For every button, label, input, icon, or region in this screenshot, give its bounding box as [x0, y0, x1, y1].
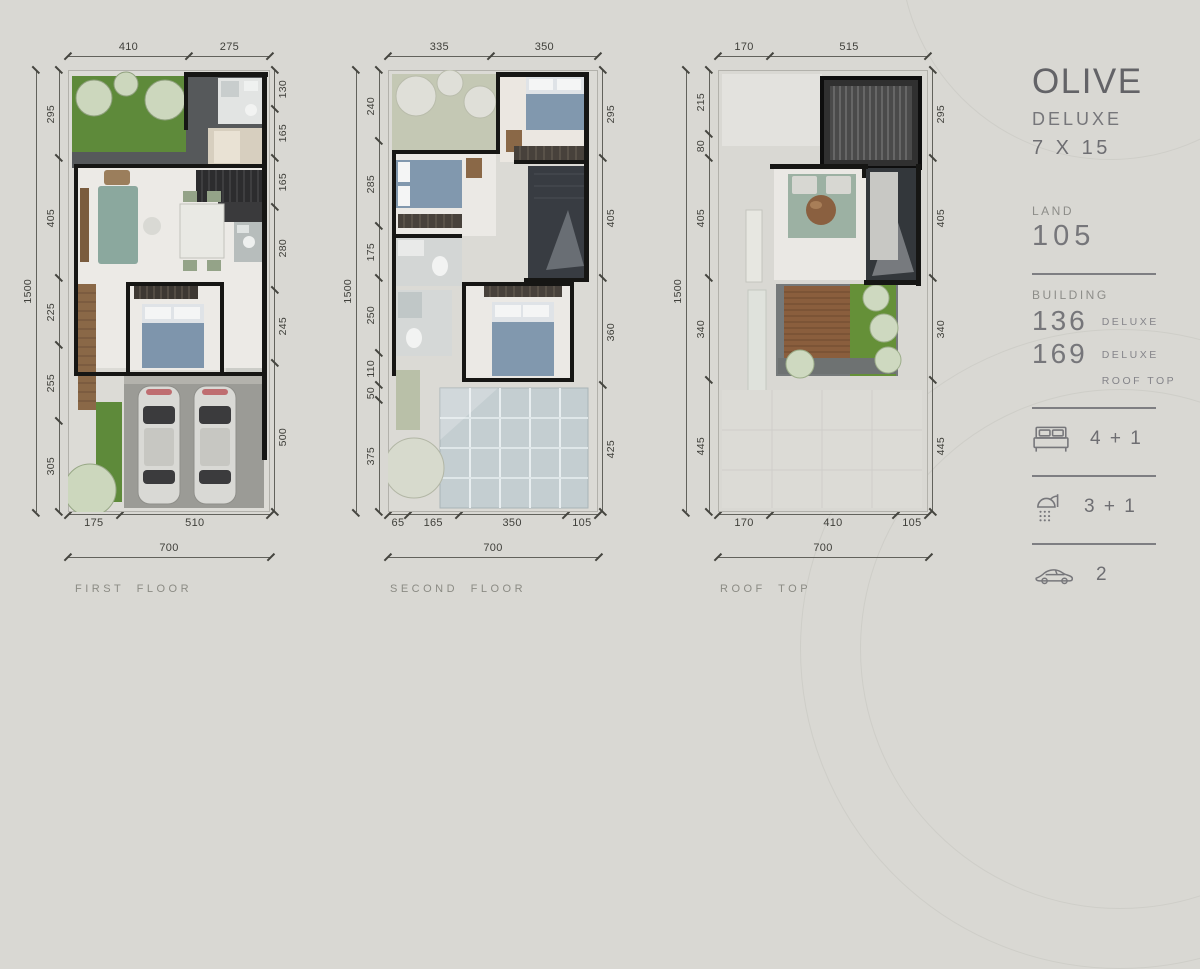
dim-label: 410: [823, 518, 842, 529]
dim-label: 295: [936, 105, 947, 123]
first-floor-label: FIRST FLOOR: [75, 583, 192, 595]
dim-left-roof-top: 215 80 405 340 445: [693, 70, 710, 512]
dim-overall-height-roof-top: 1500: [670, 70, 687, 512]
dim-label: 285: [366, 175, 377, 193]
dim-top-roof-top: 170 515: [718, 40, 928, 57]
dim-label: 405: [46, 209, 57, 227]
dim-top-first-floor: 410 275: [68, 40, 270, 57]
building-row: 136 DELUXE: [1032, 306, 1184, 335]
dim-bottom-first-floor: 175 510: [68, 514, 270, 531]
dim-label: 175: [84, 518, 103, 529]
slatted-roof: [822, 78, 920, 168]
dim-label: 295: [46, 105, 57, 123]
dim-label: 360: [606, 323, 617, 341]
dim-overall-height-second-floor: 1500: [340, 70, 357, 512]
dim-label: 515: [839, 42, 858, 53]
bedroom-middle: [396, 154, 496, 236]
bathroom: [218, 78, 262, 124]
dim-label: 175: [366, 243, 377, 261]
bedroom-lower: [466, 284, 572, 382]
dim-label: 280: [278, 239, 289, 257]
dim-right-second-floor: 295 405 360 425: [602, 70, 619, 512]
dim-label: 105: [572, 518, 591, 529]
building-note: DELUXE: [1102, 316, 1159, 328]
dim-label: 165: [278, 124, 289, 142]
dim-label: 1500: [673, 279, 684, 304]
land-value: 105: [1032, 220, 1184, 253]
dim-label: 80: [696, 140, 707, 152]
powder-room: [234, 222, 264, 262]
dim-bottom-roof-top: 170 410 105: [718, 514, 928, 531]
dim-label: 105: [902, 518, 921, 529]
carport-row: 2: [1032, 559, 1184, 591]
dim-label: 130: [278, 80, 289, 98]
dim-label: 250: [366, 306, 377, 324]
divider: [1032, 475, 1156, 477]
dim-label: 335: [430, 42, 449, 53]
building-note: ROOF TOP: [1102, 375, 1176, 387]
dim-label: 165: [278, 173, 289, 191]
dim-label: 500: [278, 428, 289, 446]
dim-overall-width-roof-top: 700: [718, 541, 928, 558]
bedroom: [130, 284, 222, 370]
dim-label: 700: [483, 543, 502, 554]
dim-label: 1500: [343, 279, 354, 304]
dim-label: 255: [46, 374, 57, 392]
carport: [124, 376, 264, 508]
dim-label: 340: [696, 320, 707, 338]
roof-top-label: ROOF TOP: [720, 583, 811, 595]
dim-label: 225: [46, 303, 57, 321]
roof-top-plan: [718, 70, 928, 512]
dim-label: 375: [366, 447, 377, 465]
dim-overall-width-first-floor: 700: [68, 541, 270, 558]
dim-label: 445: [936, 437, 947, 455]
dim-label: 405: [936, 209, 947, 227]
info-panel: OLIVE DELUXE 7 X 15 LAND 105 BUILDING 13…: [1032, 62, 1184, 595]
first-floor-plan: [68, 70, 270, 512]
dim-label: 275: [220, 42, 239, 53]
dim-right-roof-top: 295 405 340 445: [932, 70, 949, 512]
dim-label: 700: [813, 543, 832, 554]
bathroom-left: [396, 238, 462, 286]
divider: [1032, 543, 1156, 545]
building-value: 169: [1032, 339, 1088, 368]
dim-label: 170: [734, 42, 753, 53]
bed-icon: [1032, 424, 1070, 454]
dim-label: 405: [606, 209, 617, 227]
dim-top-second-floor: 335 350: [388, 40, 598, 57]
dim-bottom-second-floor: 65 165 350 105: [388, 514, 598, 531]
lower-roof-area: [722, 390, 922, 508]
bedroom-top: [500, 76, 586, 162]
bathrooms-row: 3 + 1: [1032, 491, 1184, 523]
dim-label: 240: [366, 97, 377, 115]
roof-garden-deck: [776, 284, 901, 378]
dim-label: 305: [46, 457, 57, 475]
maid-room: [208, 128, 262, 166]
car-icon: [1032, 565, 1076, 585]
dim-left-second-floor: 240 285 175 250 110 50 375: [363, 70, 380, 512]
dim-label: 110: [366, 360, 377, 378]
dim-label: 170: [734, 518, 753, 529]
bathroom-lower: [396, 290, 452, 356]
land-label: LAND: [1032, 204, 1184, 218]
dim-label: 65: [392, 518, 405, 529]
bedrooms-value: 4 + 1: [1090, 428, 1143, 450]
dim-label: 295: [606, 105, 617, 123]
stairs: [866, 168, 920, 284]
plan-size: 7 X 15: [1032, 137, 1184, 160]
dim-label: 700: [159, 543, 178, 554]
dim-label: 350: [503, 518, 522, 529]
bathrooms-value: 3 + 1: [1084, 496, 1137, 518]
dim-left-first-floor: 295 405 225 255 305: [43, 70, 60, 512]
dim-overall-height-first-floor: 1500: [20, 70, 37, 512]
front-garden: [72, 72, 186, 152]
dim-label: 165: [424, 518, 443, 529]
second-floor-plan: [388, 70, 598, 512]
dim-label: 1500: [23, 279, 34, 304]
dim-label: 410: [119, 42, 138, 53]
building-label: BUILDING: [1032, 288, 1184, 302]
dim-label: 350: [535, 42, 554, 53]
dim-right-first-floor: 130 165 165 280 245 500: [274, 70, 291, 512]
plan-title: OLIVE: [1032, 62, 1184, 102]
dim-label: 510: [185, 518, 204, 529]
dim-label: 215: [696, 93, 707, 111]
second-floor-label: SECOND FLOOR: [390, 583, 526, 595]
stairs: [528, 166, 586, 278]
dim-label: 340: [936, 320, 947, 338]
carport-value: 2: [1096, 564, 1109, 586]
dim-label: 445: [696, 437, 707, 455]
building-row: 169 DELUXE ROOF TOP: [1032, 339, 1184, 387]
dim-label: 405: [696, 209, 707, 227]
skylight-glass-roof: [440, 388, 588, 508]
dim-label: 245: [278, 317, 289, 335]
building-value: 136: [1032, 306, 1088, 335]
bedrooms-row: 4 + 1: [1032, 423, 1184, 455]
shower-icon: [1032, 491, 1064, 523]
tree-canopy: [392, 70, 496, 150]
dim-overall-width-second-floor: 700: [388, 541, 598, 558]
building-note: DELUXE: [1102, 349, 1176, 361]
dim-label: 425: [606, 440, 617, 458]
divider: [1032, 407, 1156, 409]
family-area: [774, 168, 866, 280]
plan-subtitle: DELUXE: [1032, 109, 1184, 130]
divider: [1032, 273, 1156, 275]
